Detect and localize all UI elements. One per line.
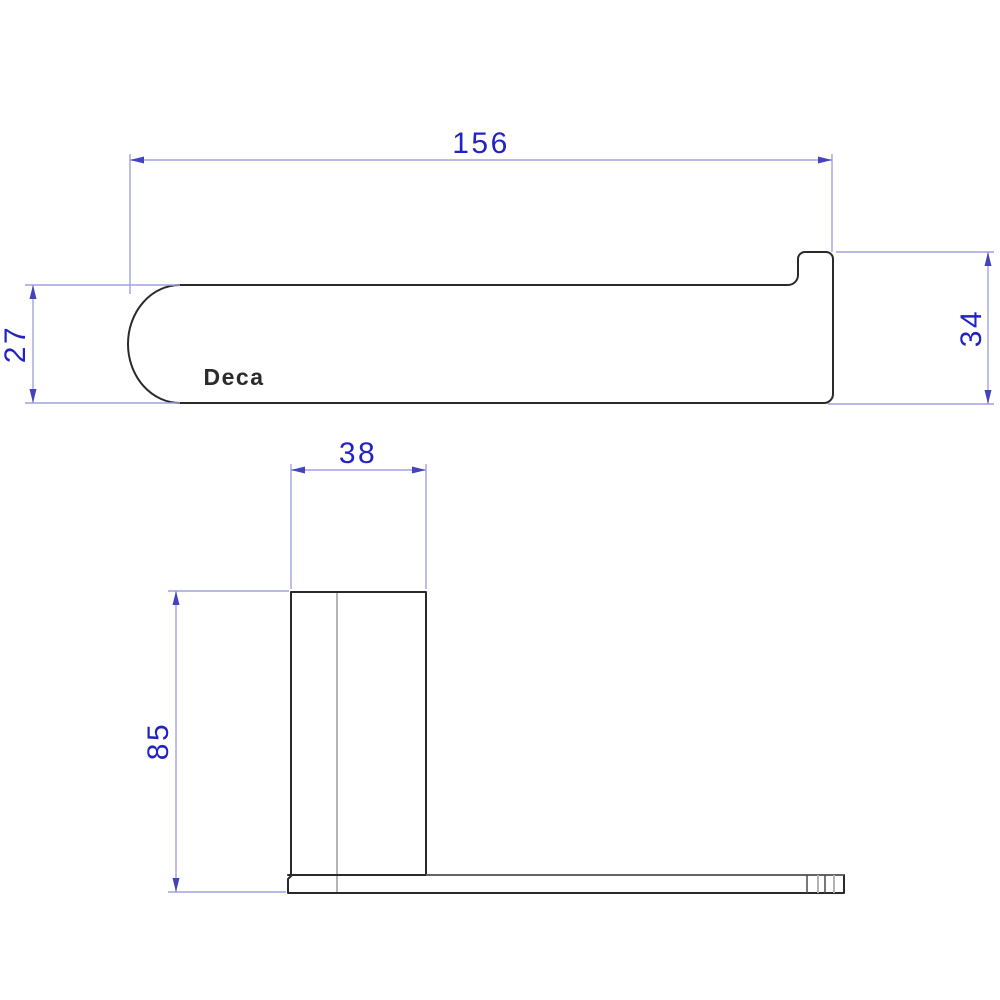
dimension-label-post-height: 85 (142, 722, 175, 760)
dimension-profile-height: 27 (0, 285, 180, 403)
dimension-post-width: 38 (291, 437, 426, 589)
arrowhead-down (173, 878, 180, 892)
arrowhead-down (985, 390, 992, 404)
dimension-label-length: 156 (452, 127, 510, 160)
dimension-post-height: 85 (142, 591, 289, 892)
dimension-label-end-height: 34 (955, 309, 988, 347)
arrowhead-up (985, 252, 992, 266)
dimension-drawing: Deca 156 27 34 (0, 0, 1000, 1000)
technical-drawing-page: Deca 156 27 34 (0, 0, 1000, 1000)
dimension-label-post-width: 38 (339, 437, 377, 470)
arrowhead-right (818, 157, 832, 164)
arrowhead-up (30, 285, 37, 299)
arrowhead-up (173, 591, 180, 605)
bar-edge-outline (288, 875, 844, 893)
arrowhead-left (130, 157, 144, 164)
dimension-end-height: 34 (828, 252, 994, 404)
arrowhead-right (412, 467, 426, 474)
arrowhead-left (291, 467, 305, 474)
dimension-label-profile-height: 27 (0, 325, 32, 363)
dimension-length: 156 (130, 127, 832, 294)
front-view (288, 592, 844, 893)
brand-logo: Deca (204, 364, 265, 390)
post-outline (291, 592, 426, 875)
side-profile-view: Deca (128, 252, 833, 403)
arrowhead-down (30, 389, 37, 403)
